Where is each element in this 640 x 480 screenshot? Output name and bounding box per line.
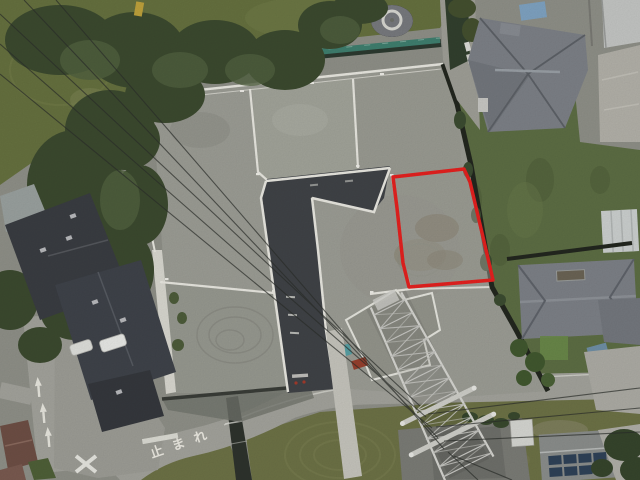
aerial-photo: 止まれ <box>0 0 640 480</box>
grain-overlay <box>0 0 640 480</box>
